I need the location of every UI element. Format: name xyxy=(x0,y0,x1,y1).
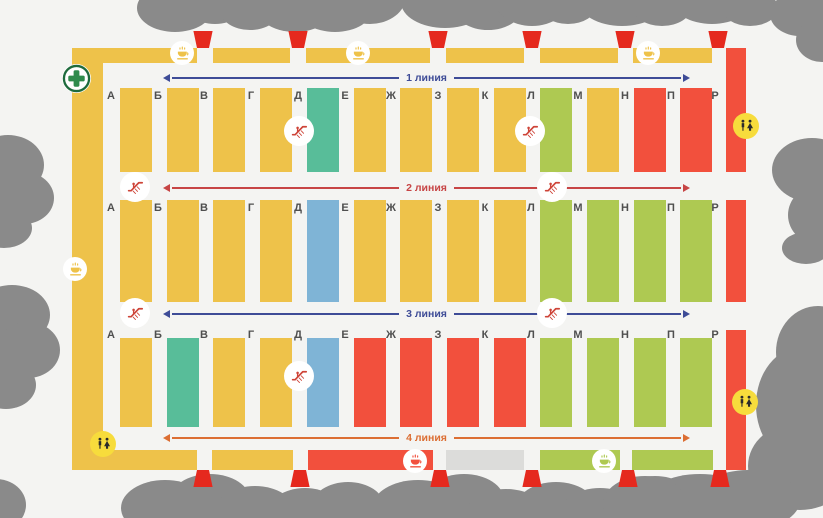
stall-row-2-М[interactable] xyxy=(587,200,619,302)
stall-row-1-Е[interactable] xyxy=(354,88,386,172)
stall-row-2-Е[interactable] xyxy=(354,200,386,302)
coffee-icon[interactable] xyxy=(63,257,87,281)
stall-letter: П xyxy=(664,202,678,215)
arrow-left-icon xyxy=(163,74,170,82)
stall-row-2-Н[interactable] xyxy=(634,200,666,302)
stall-letter: Г xyxy=(244,90,258,103)
stall-letter: З xyxy=(431,329,445,342)
stall-letter: Л xyxy=(524,90,538,103)
stall-row-1-Ж[interactable] xyxy=(400,88,432,172)
stall-letter: М xyxy=(571,202,585,215)
stall-row-1-Б[interactable] xyxy=(167,88,199,172)
pavilion-bottom-segment-4[interactable] xyxy=(446,450,524,470)
stall-letter: К xyxy=(478,90,492,103)
stall-row-2-П[interactable] xyxy=(680,200,712,302)
line-3-arrow: 3 линия xyxy=(163,308,690,320)
escalator-icon[interactable] xyxy=(284,116,314,146)
stall-letter: Е xyxy=(338,202,352,215)
escalator-icon[interactable] xyxy=(120,298,150,328)
stall-row-1-А[interactable] xyxy=(120,88,152,172)
pavilion-right-band-2[interactable] xyxy=(726,200,746,302)
arrow-left-icon xyxy=(163,184,170,192)
stall-row-3-В[interactable] xyxy=(213,338,245,427)
stall-letter: Л xyxy=(524,329,538,342)
pavilion-top-segment-5[interactable] xyxy=(540,48,618,63)
stall-row-2-Г[interactable] xyxy=(260,200,292,302)
stall-letter: А xyxy=(104,329,118,342)
pavilion-bottom-segment-6[interactable] xyxy=(632,450,713,470)
stall-letter: В xyxy=(197,90,211,103)
stall-row-3-З[interactable] xyxy=(447,338,479,427)
escalator-icon[interactable] xyxy=(284,361,314,391)
stall-row-3-Е[interactable] xyxy=(354,338,386,427)
stall-letter: К xyxy=(478,329,492,342)
stall-row-1-З[interactable] xyxy=(447,88,479,172)
line-4-label: 4 линия xyxy=(406,432,447,444)
stall-row-2-В[interactable] xyxy=(213,200,245,302)
stall-letter: Н xyxy=(618,202,632,215)
stall-row-1-В[interactable] xyxy=(213,88,245,172)
escalator-icon[interactable] xyxy=(537,172,567,202)
stall-row-3-А[interactable] xyxy=(120,338,152,427)
stall-letter: П xyxy=(664,329,678,342)
stall-letter-right: Р xyxy=(708,90,722,103)
line-2-label: 2 линия xyxy=(406,182,447,194)
stall-letter: Л xyxy=(524,202,538,215)
line-3-label: 3 линия xyxy=(406,308,447,320)
pavilion-top-segment-4[interactable] xyxy=(446,48,524,63)
stall-letter: Н xyxy=(618,329,632,342)
stall-letter: М xyxy=(571,329,585,342)
first-aid-icon[interactable] xyxy=(62,64,91,93)
arrow-right-icon xyxy=(683,184,690,192)
stall-letter: В xyxy=(197,202,211,215)
stall-letter: З xyxy=(431,202,445,215)
wc-icon[interactable] xyxy=(90,431,116,457)
line-2-arrow: 2 линия xyxy=(163,182,690,194)
wc-icon[interactable] xyxy=(733,113,759,139)
stall-row-2-Б[interactable] xyxy=(167,200,199,302)
coffee-icon[interactable] xyxy=(636,41,660,65)
escalator-icon[interactable] xyxy=(120,172,150,202)
stall-letter: К xyxy=(478,202,492,215)
stall-row-3-М[interactable] xyxy=(587,338,619,427)
stall-letter: В xyxy=(197,329,211,342)
market-floor-plan: 1 линия 2 линия 3 линия 4 линия xyxy=(0,0,823,518)
stall-letter: Н xyxy=(618,90,632,103)
stall-letter: Е xyxy=(338,329,352,342)
stall-letter: Е xyxy=(338,90,352,103)
stall-letter: Б xyxy=(151,329,165,342)
stall-row-3-Н[interactable] xyxy=(634,338,666,427)
stall-row-2-Ж[interactable] xyxy=(400,200,432,302)
stall-letter: Ж xyxy=(384,202,398,215)
stall-row-2-А[interactable] xyxy=(120,200,152,302)
stall-row-1-Н[interactable] xyxy=(634,88,666,172)
stall-letter: Г xyxy=(244,329,258,342)
coffee-icon[interactable] xyxy=(170,41,194,65)
arrow-left-icon xyxy=(163,434,170,442)
stall-letter: Ж xyxy=(384,90,398,103)
stall-letter: Б xyxy=(151,90,165,103)
stall-letter: Д xyxy=(291,329,305,342)
stall-letter: Д xyxy=(291,202,305,215)
stall-row-3-Б[interactable] xyxy=(167,338,199,427)
escalator-icon[interactable] xyxy=(515,116,545,146)
coffee-icon[interactable] xyxy=(592,449,616,473)
stall-row-2-Д[interactable] xyxy=(307,200,339,302)
arrow-right-icon xyxy=(683,74,690,82)
arrow-left-icon xyxy=(163,310,170,318)
stall-letter: Ж xyxy=(384,329,398,342)
stall-letter: Г xyxy=(244,202,258,215)
pavilion-bottom-segment-2[interactable] xyxy=(212,450,293,470)
stall-row-2-К[interactable] xyxy=(494,200,526,302)
wc-icon[interactable] xyxy=(732,389,758,415)
stall-row-2-Л[interactable] xyxy=(540,200,572,302)
pavilion-right-band-1[interactable] xyxy=(726,48,746,172)
stall-row-3-П[interactable] xyxy=(680,338,712,427)
stall-row-3-К[interactable] xyxy=(494,338,526,427)
arrow-right-icon xyxy=(683,310,690,318)
stall-letter-right: Р xyxy=(708,329,722,342)
stall-letter-right: Р xyxy=(708,202,722,215)
line-4-arrow: 4 линия xyxy=(163,432,690,444)
stall-row-3-Л[interactable] xyxy=(540,338,572,427)
line-1-arrow: 1 линия xyxy=(163,72,690,84)
coffee-icon[interactable] xyxy=(346,41,370,65)
coffee-icon[interactable] xyxy=(403,449,427,473)
stall-letter: Б xyxy=(151,202,165,215)
stall-letter: М xyxy=(571,90,585,103)
arrow-right-icon xyxy=(683,434,690,442)
stall-letter: А xyxy=(104,90,118,103)
stall-letter: А xyxy=(104,202,118,215)
stall-row-1-М[interactable] xyxy=(587,88,619,172)
stall-letter: П xyxy=(664,90,678,103)
stall-row-3-Ж[interactable] xyxy=(400,338,432,427)
stall-letter: З xyxy=(431,90,445,103)
stall-row-2-З[interactable] xyxy=(447,200,479,302)
stall-letter: Д xyxy=(291,90,305,103)
escalator-icon[interactable] xyxy=(537,298,567,328)
pavilion-top-segment-2[interactable] xyxy=(213,48,290,63)
pavilion-bottom-segment-1[interactable] xyxy=(103,450,197,470)
line-1-label: 1 линия xyxy=(406,72,447,84)
